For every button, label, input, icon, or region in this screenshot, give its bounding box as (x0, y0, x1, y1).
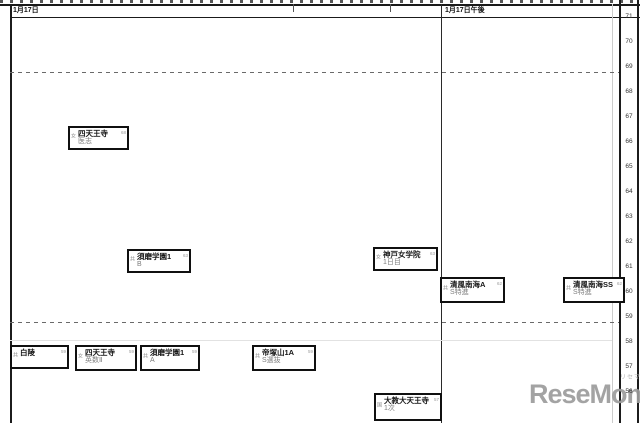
course-name: 医志 (78, 138, 121, 146)
school-type-marker: 共 (443, 286, 448, 291)
course-name: S特進 (573, 289, 617, 297)
y-axis-label: 60 (621, 287, 637, 297)
box-value-marker: 57 (434, 397, 439, 402)
header-tick (293, 4, 294, 12)
column-header-morning: 1月17日 (13, 5, 39, 15)
axis-inner-light-line (612, 4, 613, 423)
school-box: 共59須磨学園1A (140, 345, 200, 371)
y-axis-label: 68 (621, 87, 637, 97)
exam-schedule-chart: 1月17日 1月17日午後 71706968676665646362616059… (0, 0, 640, 423)
chart-right-border (637, 0, 639, 423)
school-box: 共62清風南海SSS特進 (563, 277, 625, 303)
box-value-marker: 63 (430, 251, 435, 256)
course-name: 1次 (384, 405, 434, 413)
school-name: 大教大天王寺 (384, 396, 434, 405)
school-name: 清風南海A (450, 280, 497, 289)
school-box: 国57大教大天王寺1次 (374, 393, 442, 421)
school-name: 須磨学園1 (137, 252, 183, 261)
course-name: 1日目 (383, 259, 430, 267)
y-axis-label: 65 (621, 162, 637, 172)
school-type-marker: 共 (13, 354, 18, 359)
faint-gridline (10, 340, 612, 341)
box-value-marker: 59 (192, 349, 197, 354)
y-axis-label: 70 (621, 37, 637, 47)
top-cutoff-strip (0, 0, 640, 3)
school-name: 四天王寺 (85, 348, 129, 357)
watermark-ruby: リセマム (620, 375, 640, 381)
school-box: 共63須磨学園1B (127, 249, 191, 273)
school-name: 清風南海SS (573, 280, 617, 289)
box-value-marker: 59 (61, 349, 66, 354)
box-value-marker: 59 (308, 349, 313, 354)
y-axis-label: 61 (621, 262, 637, 272)
school-name: 須磨学園1 (150, 348, 192, 357)
box-value-marker: 63 (183, 253, 188, 258)
school-type-marker: 共 (566, 286, 571, 291)
school-type-marker: 女 (71, 135, 76, 140)
column-header-afternoon: 1月17日午後 (445, 5, 485, 15)
school-type-marker: 女 (376, 256, 381, 261)
school-box: 共59帝塚山1AS選抜 (252, 345, 316, 371)
school-name: 白陵 (20, 348, 61, 357)
header-tick (390, 4, 391, 12)
y-axis-label: 59 (621, 312, 637, 322)
school-type-marker: 共 (130, 258, 135, 263)
threshold-dashed-line (10, 322, 619, 323)
school-box: 共59白陵 (10, 345, 69, 369)
y-axis-label: 58 (621, 337, 637, 347)
school-box: 女63神戸女学院1日目 (373, 247, 438, 271)
school-type-marker: 女 (78, 354, 83, 359)
course-name: 英数Ⅱ (85, 357, 129, 365)
y-axis-label: 69 (621, 62, 637, 72)
school-box: 共62清風南海AS特進 (440, 277, 505, 303)
course-name: S特進 (450, 289, 497, 297)
school-name: 帝塚山1A (262, 348, 308, 357)
header-top-rule (0, 4, 640, 6)
morning-afternoon-divider (441, 4, 442, 423)
school-type-marker: 国 (377, 403, 382, 408)
school-type-marker: 共 (143, 354, 148, 359)
course-name: B (137, 261, 183, 269)
threshold-dashed-line (10, 72, 619, 73)
box-value-marker: 59 (129, 349, 134, 354)
box-value-marker: 68 (121, 130, 126, 135)
course-name: A (150, 357, 192, 365)
y-axis-label: 67 (621, 112, 637, 122)
box-value-marker: 62 (497, 281, 502, 286)
y-axis-label: 64 (621, 187, 637, 197)
y-axis-label: 56 (621, 387, 637, 397)
school-name: 四天王寺 (78, 129, 121, 138)
box-value-marker: 62 (617, 281, 622, 286)
y-axis-label: 62 (621, 237, 637, 247)
course-name: S選抜 (262, 357, 308, 365)
school-box: 女59四天王寺英数Ⅱ (75, 345, 137, 371)
y-axis-label: 71 (621, 12, 637, 22)
y-axis-label: 63 (621, 212, 637, 222)
school-type-marker: 共 (255, 354, 260, 359)
header-bottom-rule (10, 17, 640, 18)
school-name: 神戸女学院 (383, 250, 430, 259)
y-axis-label: 57 (621, 362, 637, 372)
y-axis-label: 66 (621, 137, 637, 147)
school-box: 女68四天王寺医志 (68, 126, 129, 150)
